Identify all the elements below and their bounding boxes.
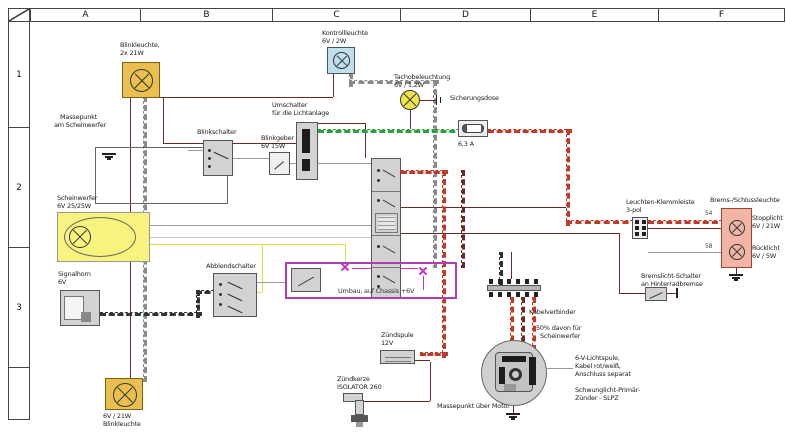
wire	[648, 220, 727, 224]
stop-lamp-rating: 6V / 21W	[752, 223, 780, 230]
horn-magnet-icon	[81, 312, 91, 322]
column-label-e: E	[531, 9, 659, 21]
horn	[60, 290, 100, 326]
wire	[233, 158, 269, 159]
switch-contact	[228, 282, 243, 290]
lamp-icon	[729, 220, 745, 236]
wire	[513, 406, 514, 413]
column-ruler: A B C D E F	[30, 8, 785, 22]
wire	[262, 244, 263, 292]
contact-dot	[219, 283, 222, 286]
row-label-2: 2	[9, 128, 29, 248]
wire	[420, 352, 448, 356]
lamp-icon	[69, 226, 91, 248]
ground-icon	[102, 153, 116, 162]
engine-ground-label: Massepunkt über Motor	[437, 403, 510, 410]
magneto-coil-icon	[529, 357, 536, 385]
speedo-lamp	[400, 90, 420, 110]
contact-dot	[208, 165, 211, 168]
wire	[100, 312, 202, 316]
switch-contact	[228, 294, 243, 302]
tail-light-title: Brems-/Schlussleuchte	[710, 197, 780, 204]
wire	[430, 362, 431, 401]
modification-switch	[291, 268, 321, 292]
column-label-c: C	[273, 9, 401, 21]
section-divider	[372, 191, 400, 192]
wire-number-58: 58	[705, 244, 712, 251]
flasher-rating: 6V 15W	[261, 143, 285, 150]
fuse-rating: 6,3 A	[458, 141, 474, 148]
wire	[163, 97, 164, 143]
magneto-coil-icon	[502, 356, 526, 362]
column-label-b: B	[141, 9, 273, 21]
contact-dot	[377, 199, 380, 202]
lamp-icon	[333, 52, 350, 69]
magneto-name-label2: Zünder - SLPZ	[575, 395, 619, 402]
wire	[150, 244, 345, 245]
ruler-corner	[8, 8, 30, 22]
wire	[150, 225, 371, 226]
lamp-icon	[113, 383, 137, 407]
wire	[676, 288, 678, 298]
terminal-strip-label2: 3-pol	[626, 207, 641, 214]
wire	[667, 293, 676, 294]
wire	[318, 123, 365, 124]
section-divider	[372, 235, 400, 236]
wire	[488, 129, 572, 133]
leader-line	[547, 368, 573, 369]
connector-strip	[487, 285, 541, 291]
wire	[648, 228, 721, 229]
control-lamp-rating: 6V / 2W	[322, 38, 346, 45]
switch-contact	[274, 161, 284, 169]
light-switch-label2: für die Lichtanlage	[272, 110, 329, 117]
fuse-box	[458, 120, 488, 137]
switch-detent-icon	[302, 159, 310, 171]
flasher-relay	[269, 152, 290, 175]
light-switch	[296, 122, 318, 180]
wire	[196, 290, 200, 318]
switch-legend	[375, 213, 398, 233]
spark-plug-type: ISOLATOR 260	[337, 384, 382, 391]
connector-label: Kabelverbinder	[529, 309, 576, 316]
ground-icon	[506, 413, 520, 422]
ground-icon	[729, 274, 743, 283]
tail-light	[721, 208, 752, 268]
magneto-hub-icon	[509, 368, 522, 381]
wire	[415, 360, 430, 361]
wire	[401, 170, 448, 174]
magneto-pct-label2: Scheinwerfer	[540, 333, 580, 340]
wire	[511, 252, 512, 279]
ignition-coil	[380, 350, 415, 364]
wire	[420, 100, 436, 101]
wire	[318, 129, 464, 133]
wire-number-54: 54	[705, 211, 712, 218]
switch-detent-icon	[302, 129, 310, 153]
wiring-diagram: A B C D E F 1 2 3	[0, 0, 786, 443]
front-blinker	[122, 62, 160, 98]
column-label-d: D	[401, 9, 531, 21]
horn-rating: 6V	[58, 279, 66, 286]
rear-blinker-label: Blinkleuchte	[103, 421, 141, 428]
wire	[345, 244, 346, 262]
wire	[401, 233, 619, 234]
brake-light-switch	[645, 287, 667, 301]
plug-cap-stem	[355, 400, 364, 415]
terminal-pins	[642, 220, 646, 236]
wire	[461, 170, 465, 268]
wire	[440, 97, 441, 103]
terminal-strip	[632, 217, 648, 239]
row-label-1: 1	[9, 22, 29, 128]
terminal-pins	[635, 220, 639, 236]
switch-contact	[228, 306, 243, 314]
spark-plug-body	[351, 415, 368, 422]
connector-pins	[489, 292, 539, 297]
switch-contact	[298, 277, 314, 287]
magneto-coil-icon	[499, 367, 505, 384]
contact-dot	[377, 179, 380, 182]
wire	[566, 129, 570, 226]
blinker-switch	[203, 140, 233, 176]
spark-plug-tip	[356, 422, 363, 427]
contact-dot	[377, 169, 380, 172]
fuse-label: Sicherungsdose	[450, 95, 499, 102]
lamp-icon	[130, 69, 153, 92]
magneto-cam-icon	[504, 384, 516, 391]
wire	[333, 74, 334, 97]
wire	[136, 97, 333, 98]
rear-blinker	[105, 378, 143, 410]
blinker-switch-label: Blinkschalter	[197, 129, 236, 136]
row-ruler-filler	[9, 368, 29, 419]
modification-note: Umbau, auf Chassis +6V	[338, 288, 414, 295]
dimmer-switch-label: Abblendschalter	[206, 263, 256, 270]
masse-scheinwerfer-label2: am Scheinwerfer	[54, 122, 106, 129]
wire	[410, 110, 411, 129]
headlight	[57, 212, 150, 262]
switch-contact	[214, 152, 229, 160]
contact-dot	[219, 293, 222, 296]
speedo-lamp-rating: 6V / 1,2W	[394, 82, 424, 89]
wire	[401, 207, 566, 208]
switch-contact	[649, 292, 662, 299]
coil-winding-icon	[385, 354, 411, 362]
contact-dot	[377, 245, 380, 248]
lamp-icon	[729, 244, 745, 260]
row-ruler: 1 2 3	[8, 22, 30, 420]
headlight-rating: 6V 25/25W	[57, 203, 91, 210]
wire	[619, 293, 645, 294]
switch-contact	[383, 200, 396, 208]
wire	[566, 220, 638, 224]
wire	[433, 80, 437, 268]
wire	[150, 237, 371, 238]
row-label-3: 3	[9, 248, 29, 368]
switch-contact	[383, 246, 396, 254]
wire	[619, 233, 620, 293]
dimmer-switch	[213, 273, 257, 317]
wire	[364, 401, 430, 402]
contact-dot	[219, 303, 222, 306]
ignition-coil-rating: 12V	[381, 340, 393, 347]
wire	[257, 282, 285, 283]
column-label-f: F	[659, 9, 784, 21]
contact-dot	[208, 149, 211, 152]
switch-contact	[383, 170, 396, 178]
control-lamp	[327, 47, 355, 74]
wire	[436, 95, 437, 105]
splice-x-icon	[340, 262, 350, 272]
fuse-icon	[462, 124, 484, 133]
magneto-coil-label3: Anschluss separat	[575, 371, 631, 378]
connector-pins	[489, 279, 539, 284]
column-label-a: A	[31, 9, 141, 21]
front-blinker-rating: 2x 21W	[120, 50, 144, 57]
tail-lamp-rating: 6V / 5W	[752, 253, 776, 260]
wire	[648, 252, 721, 253]
contact-dot	[208, 157, 211, 160]
splice-x-icon	[418, 266, 428, 276]
